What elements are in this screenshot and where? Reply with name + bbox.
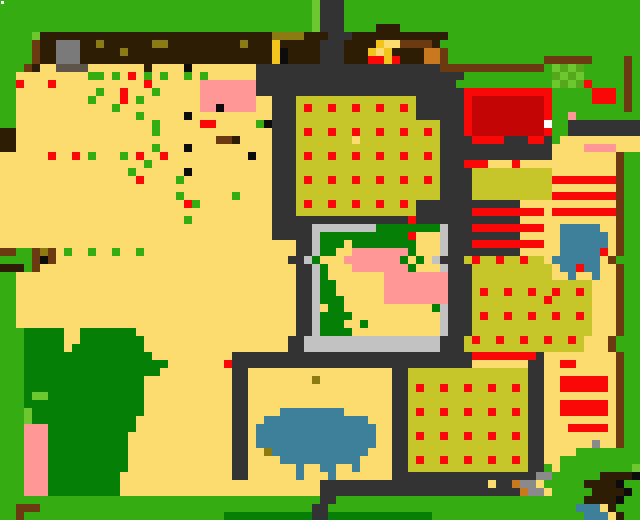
game-viewport bbox=[0, 0, 640, 520]
farm-map[interactable] bbox=[0, 0, 640, 520]
